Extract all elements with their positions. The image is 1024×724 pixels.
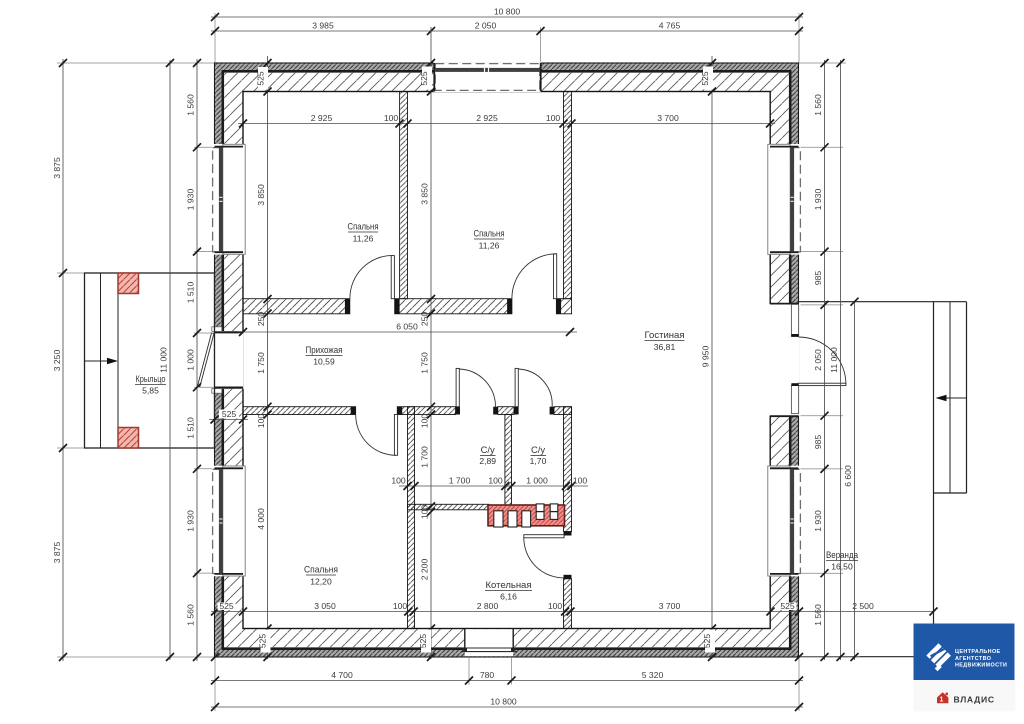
svg-text:1: 1 <box>940 697 944 704</box>
svg-text:2 050: 2 050 <box>475 21 497 31</box>
svg-text:Веранда: Веранда <box>826 549 859 560</box>
svg-text:Спальня: Спальня <box>304 564 338 575</box>
svg-text:3 700: 3 700 <box>659 601 681 611</box>
svg-text:4 700: 4 700 <box>331 670 353 680</box>
svg-text:6,16: 6,16 <box>500 592 517 602</box>
svg-text:525: 525 <box>419 71 429 86</box>
svg-text:780: 780 <box>480 670 495 680</box>
svg-text:1 750: 1 750 <box>256 352 266 374</box>
svg-text:Котельная: Котельная <box>486 579 532 590</box>
svg-text:3 050: 3 050 <box>314 601 336 611</box>
svg-text:525: 525 <box>418 634 428 649</box>
svg-text:4 765: 4 765 <box>659 21 681 31</box>
svg-text:2 800: 2 800 <box>477 601 499 611</box>
svg-text:1 000: 1 000 <box>526 476 548 486</box>
svg-text:100: 100 <box>256 414 266 429</box>
svg-text:Прихожая: Прихожая <box>306 344 343 355</box>
svg-text:2 925: 2 925 <box>476 113 498 123</box>
svg-text:250: 250 <box>420 312 430 327</box>
svg-text:11,26: 11,26 <box>479 241 500 251</box>
svg-text:100: 100 <box>573 476 588 486</box>
svg-text:100: 100 <box>420 414 430 429</box>
svg-text:3 250: 3 250 <box>52 350 62 372</box>
svg-text:525: 525 <box>255 71 265 86</box>
svg-text:11 000: 11 000 <box>829 347 839 373</box>
svg-text:9 950: 9 950 <box>701 346 711 368</box>
svg-text:Гостиная: Гостиная <box>645 329 685 340</box>
svg-text:1 560: 1 560 <box>186 94 196 116</box>
svg-text:1 700: 1 700 <box>449 476 471 486</box>
svg-text:100: 100 <box>488 476 503 486</box>
svg-text:11 000: 11 000 <box>159 347 169 373</box>
svg-text:3 700: 3 700 <box>657 113 679 123</box>
svg-text:6 050: 6 050 <box>396 322 418 332</box>
svg-text:ВЛАДИС: ВЛАДИС <box>954 694 995 704</box>
svg-text:2,89: 2,89 <box>479 456 496 466</box>
svg-text:10,59: 10,59 <box>313 357 335 367</box>
svg-text:1 930: 1 930 <box>186 189 196 211</box>
svg-text:525: 525 <box>700 71 710 86</box>
svg-text:Спальня: Спальня <box>348 221 379 232</box>
svg-text:2 925: 2 925 <box>311 113 333 123</box>
svg-text:3 850: 3 850 <box>256 184 266 206</box>
svg-text:1 560: 1 560 <box>186 604 196 626</box>
svg-text:НЕДВИЖИМОСТИ: НЕДВИЖИМОСТИ <box>955 662 1007 668</box>
svg-text:36,81: 36,81 <box>654 342 676 352</box>
svg-text:100: 100 <box>420 505 430 520</box>
svg-text:985: 985 <box>813 435 823 450</box>
svg-text:250: 250 <box>256 312 266 327</box>
svg-text:100: 100 <box>546 113 561 123</box>
svg-text:3 875: 3 875 <box>52 157 62 179</box>
svg-text:1 560: 1 560 <box>813 604 823 626</box>
svg-text:5 320: 5 320 <box>642 670 664 680</box>
svg-text:5,85: 5,85 <box>142 386 159 396</box>
svg-text:12,20: 12,20 <box>310 577 332 587</box>
svg-text:525: 525 <box>219 601 234 611</box>
svg-text:1 560: 1 560 <box>813 94 823 116</box>
svg-text:1,70: 1,70 <box>530 456 547 466</box>
svg-text:1 510: 1 510 <box>186 417 196 439</box>
svg-text:3 850: 3 850 <box>420 183 430 205</box>
svg-text:1 700: 1 700 <box>420 446 430 468</box>
svg-text:6 600: 6 600 <box>843 465 853 487</box>
svg-text:10 800: 10 800 <box>490 697 517 707</box>
svg-text:ЦЕНТРАЛЬНОЕ: ЦЕНТРАЛЬНОЕ <box>955 649 1001 655</box>
svg-text:С/у: С/у <box>481 444 495 455</box>
svg-text:10 800: 10 800 <box>494 7 521 17</box>
svg-text:1 930: 1 930 <box>186 510 196 532</box>
svg-text:3 875: 3 875 <box>52 542 62 564</box>
svg-text:1 000: 1 000 <box>186 349 196 371</box>
svg-text:1 750: 1 750 <box>420 352 430 374</box>
svg-text:3 985: 3 985 <box>312 21 334 31</box>
svg-text:16,50: 16,50 <box>831 562 853 572</box>
svg-text:11,26: 11,26 <box>353 234 374 244</box>
svg-text:1 930: 1 930 <box>813 189 823 211</box>
svg-text:1 510: 1 510 <box>186 282 196 304</box>
svg-text:525: 525 <box>222 409 237 419</box>
svg-text:100: 100 <box>384 113 399 123</box>
svg-text:100: 100 <box>393 601 408 611</box>
svg-text:2 050: 2 050 <box>813 349 823 371</box>
svg-text:4 000: 4 000 <box>256 508 266 530</box>
svg-text:100: 100 <box>391 476 406 486</box>
svg-text:С/у: С/у <box>531 444 545 455</box>
svg-text:985: 985 <box>813 271 823 286</box>
svg-text:100: 100 <box>548 601 563 611</box>
svg-text:525: 525 <box>258 634 268 649</box>
svg-text:Спальня: Спальня <box>474 228 505 239</box>
svg-text:525: 525 <box>780 601 795 611</box>
svg-text:АГЕНТСТВО: АГЕНТСТВО <box>955 656 991 662</box>
svg-text:Крыльцо: Крыльцо <box>136 373 166 384</box>
svg-text:1 930: 1 930 <box>813 510 823 532</box>
svg-text:525: 525 <box>702 634 712 649</box>
svg-text:2 200: 2 200 <box>420 559 430 581</box>
svg-text:2 500: 2 500 <box>852 601 874 611</box>
